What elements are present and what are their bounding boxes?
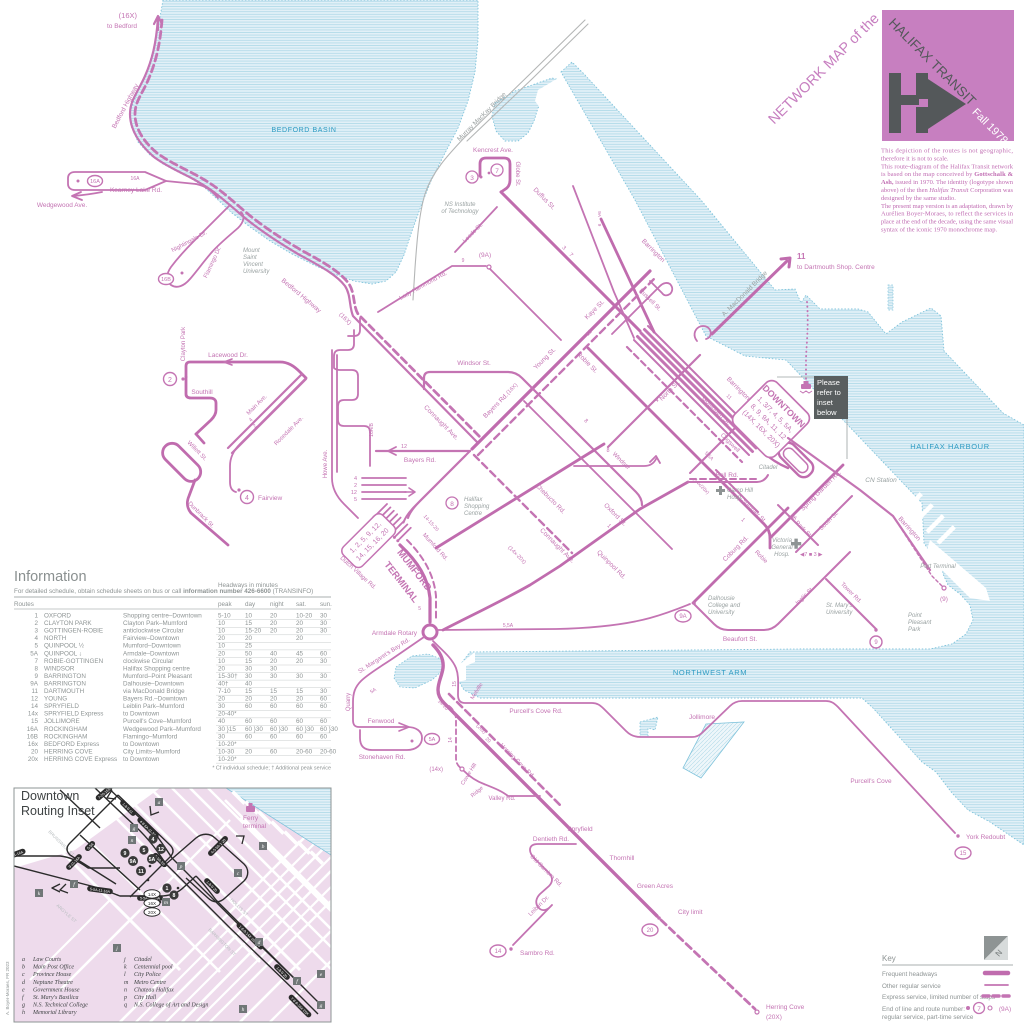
svg-text:9: 9	[596, 224, 602, 227]
svg-text:Frequent headways: Frequent headways	[882, 971, 937, 978]
svg-text:ROCKINGHAM: ROCKINGHAM	[44, 733, 87, 740]
svg-text:30: 30	[270, 673, 278, 680]
svg-text:20: 20	[245, 635, 253, 642]
svg-text:Chateau Halifax: Chateau Halifax	[134, 986, 174, 993]
svg-text:Spryfield: Spryfield	[567, 826, 593, 833]
svg-text:Bayers Rd.–Downtown: Bayers Rd.–Downtown	[123, 696, 188, 703]
svg-text:n: n	[124, 987, 127, 993]
svg-text:This depiction of the routes i: This depiction of the routes is not geog…	[881, 148, 1013, 155]
svg-text:20: 20	[296, 658, 304, 665]
svg-text:10: 10	[218, 620, 226, 627]
svg-text:10: 10	[245, 613, 253, 620]
svg-text:WINDSOR: WINDSOR	[44, 665, 75, 672]
svg-text:For detailed schedule, obtain: For detailed schedule, obtain schedule s…	[14, 588, 313, 595]
svg-text:Ferry: Ferry	[243, 815, 259, 822]
svg-text:Routing Inset: Routing Inset	[21, 804, 95, 818]
svg-text:Purcell's Cove Rd.: Purcell's Cove Rd.	[509, 708, 562, 715]
svg-text:60 }30: 60 }30	[245, 726, 263, 733]
svg-text:k: k	[124, 965, 127, 971]
svg-text:Point: Point	[908, 613, 922, 619]
svg-text:16x: 16x	[28, 741, 39, 748]
svg-text:(14x): (14x)	[429, 767, 443, 773]
svg-text:Express service, limited numbe: Express service, limited number of stops	[882, 994, 995, 1001]
svg-text:Dalhousie: Dalhousie	[708, 596, 735, 602]
svg-text:4: 4	[152, 837, 155, 843]
svg-text:16A: 16A	[90, 179, 100, 185]
svg-text:Other regular service: Other regular service	[882, 983, 941, 990]
svg-text:Kearney Lake Rd.: Kearney Lake Rd.	[110, 187, 162, 194]
svg-text:SPRYFIELD Express: SPRYFIELD Express	[44, 711, 103, 718]
svg-text:Information: Information	[14, 569, 87, 585]
svg-text:Herring Cove: Herring Cove	[766, 1004, 805, 1011]
svg-text:below: below	[817, 408, 837, 417]
svg-text:10: 10	[218, 658, 226, 665]
svg-text:8: 8	[450, 501, 454, 508]
svg-text:b: b	[262, 844, 265, 850]
svg-text:Mumford–Downtown: Mumford–Downtown	[123, 643, 181, 650]
svg-text:9: 9	[124, 851, 127, 857]
svg-text:20: 20	[218, 650, 226, 657]
svg-text:30: 30	[320, 673, 328, 680]
svg-text:HERRING COVE Express: HERRING COVE Express	[44, 756, 117, 763]
svg-text:g: g	[22, 1003, 25, 1009]
svg-text:16B: 16B	[161, 277, 171, 283]
svg-text:60: 60	[245, 733, 253, 740]
svg-text:Wedgewood Park–Mumford: Wedgewood Park–Mumford	[123, 726, 201, 733]
svg-text:20: 20	[31, 748, 39, 755]
svg-text:m: m	[124, 980, 129, 986]
svg-text:9A: 9A	[596, 211, 602, 218]
svg-text:Dentieth Rd.: Dentieth Rd.	[533, 836, 569, 843]
svg-text:q: q	[124, 1003, 127, 1009]
svg-text:b: b	[22, 965, 25, 971]
svg-text:therefore it is not to scale.: therefore it is not to scale.	[881, 155, 949, 162]
svg-text:Armdale Rotary: Armdale Rotary	[372, 630, 418, 637]
svg-text:N.S. Technical College: N.S. Technical College	[32, 1003, 88, 1009]
svg-text:Purcell's Cove–Mumford: Purcell's Cove–Mumford	[123, 718, 192, 725]
svg-text:HERRING COVE: HERRING COVE	[44, 748, 93, 755]
svg-text:10: 10	[218, 628, 226, 635]
svg-text:Green Acres: Green Acres	[637, 883, 674, 890]
svg-text:sat.: sat.	[296, 601, 306, 608]
svg-text:d: d	[258, 940, 261, 946]
svg-text:2: 2	[34, 620, 38, 627]
svg-text:terminal: terminal	[243, 823, 267, 830]
svg-text:to Downtown: to Downtown	[123, 711, 160, 718]
svg-text:25: 25	[245, 643, 253, 650]
svg-text:to Downtown: to Downtown	[123, 741, 160, 748]
svg-text:Saint: Saint	[243, 255, 257, 261]
svg-text:12: 12	[351, 490, 357, 496]
svg-text:7: 7	[495, 168, 499, 175]
svg-text:20x: 20x	[28, 756, 39, 763]
svg-text:20: 20	[270, 658, 278, 665]
svg-text:14: 14	[31, 703, 39, 710]
svg-text:Bayers Rd.: Bayers Rd.	[404, 457, 436, 464]
svg-text:Province House: Province House	[32, 972, 72, 978]
svg-text:60: 60	[320, 718, 328, 725]
svg-text:sun.: sun.	[320, 601, 332, 608]
svg-text:15: 15	[245, 688, 253, 695]
svg-text:Metro Centre: Metro Centre	[133, 980, 166, 986]
svg-text:60: 60	[320, 703, 328, 710]
svg-text:St. Mary's: St. Mary's	[826, 603, 852, 609]
svg-text:Howe Ave.: Howe Ave.	[323, 449, 329, 478]
svg-text:1: 1	[166, 886, 169, 892]
svg-text:Valley Rd.: Valley Rd.	[489, 796, 516, 802]
svg-text:10: 10	[218, 643, 226, 650]
svg-text:12: 12	[158, 847, 164, 853]
svg-text:Port Terminal: Port Terminal	[920, 564, 956, 570]
svg-text:CN Station: CN Station	[865, 477, 897, 484]
svg-text:20: 20	[270, 628, 278, 635]
svg-text:This route-diagram of the Hali: This route-diagram of the Halifax Transi…	[881, 163, 1014, 170]
svg-text:OXFORD: OXFORD	[44, 613, 71, 620]
svg-text:5: 5	[354, 497, 357, 503]
svg-text:10-20*: 10-20*	[218, 741, 237, 748]
svg-text:20: 20	[296, 696, 304, 703]
svg-text:inset: inset	[817, 398, 834, 407]
svg-text:60: 60	[296, 733, 304, 740]
svg-text:7: 7	[977, 1006, 981, 1013]
svg-text:2: 2	[168, 377, 172, 384]
svg-text:place at the end of the decade: place at the end of the decade, using th…	[881, 219, 1013, 226]
svg-text:day: day	[245, 601, 256, 608]
svg-text:20: 20	[647, 928, 654, 934]
svg-text:8: 8	[173, 893, 176, 899]
svg-text:20: 20	[270, 696, 278, 703]
svg-text:Wedgewood Ave.: Wedgewood Ave.	[37, 202, 88, 209]
svg-text:30: 30	[320, 620, 328, 627]
svg-text:Vincent: Vincent	[243, 262, 263, 268]
svg-text:City limit: City limit	[678, 909, 703, 916]
svg-text:5: 5	[34, 643, 38, 650]
svg-text:14X: 14X	[148, 892, 156, 897]
svg-text:General: General	[771, 545, 793, 551]
svg-text:Dalhousie–Downtown: Dalhousie–Downtown	[123, 680, 184, 687]
svg-text:20: 20	[296, 635, 304, 642]
svg-text:15-30†: 15-30†	[218, 673, 238, 680]
svg-text:(20X): (20X)	[766, 1014, 782, 1021]
svg-text:11: 11	[797, 252, 806, 261]
svg-text:University: University	[826, 610, 853, 616]
svg-text:SPRYFIELD: SPRYFIELD	[44, 703, 79, 710]
svg-text:Routes: Routes	[14, 601, 34, 608]
svg-text:HALIFAX HARBOUR: HALIFAX HARBOUR	[910, 442, 989, 451]
svg-text:3: 3	[34, 628, 38, 635]
svg-text:30: 30	[245, 665, 253, 672]
svg-text:Purcell's Cove: Purcell's Cove	[850, 778, 892, 785]
svg-text:7-10: 7-10	[218, 688, 231, 695]
svg-text:Shopping: Shopping	[464, 504, 490, 510]
svg-text:The present map version is an: The present map version is an adaptation…	[881, 203, 1014, 210]
svg-text:Please: Please	[817, 378, 840, 387]
svg-text:peak: peak	[218, 601, 233, 608]
svg-text:c: c	[22, 972, 25, 978]
svg-text:50: 50	[245, 650, 253, 657]
svg-text:CLAYTON PARK: CLAYTON PARK	[44, 620, 92, 627]
svg-text:DARTMOUTH: DARTMOUTH	[44, 688, 85, 695]
svg-text:20: 20	[218, 696, 226, 703]
svg-text:to Bedford: to Bedford	[107, 23, 137, 30]
svg-text:15: 15	[960, 851, 967, 857]
svg-text:Law Courts: Law Courts	[32, 957, 62, 963]
svg-text:15: 15	[31, 718, 39, 725]
svg-text:60: 60	[270, 718, 278, 725]
svg-text:5A: 5A	[149, 857, 156, 863]
svg-text:a: a	[22, 957, 25, 963]
svg-text:ROBIE-GOTTINGEN: ROBIE-GOTTINGEN	[44, 658, 104, 665]
svg-text:Halifax Shopping centre: Halifax Shopping centre	[123, 665, 190, 672]
svg-text:Centre: Centre	[464, 511, 483, 517]
svg-text:BARRINGTON: BARRINGTON	[44, 680, 86, 687]
svg-text:Ash, issued in 1970. The ident: Ash, issued in 1970. The identity (logot…	[881, 179, 1014, 186]
svg-text:30: 30	[320, 613, 328, 620]
svg-text:30: 30	[218, 703, 226, 710]
svg-text:Shopping centre–Downtown: Shopping centre–Downtown	[123, 613, 202, 620]
svg-text:9A: 9A	[130, 859, 137, 865]
svg-text:30: 30	[320, 628, 328, 635]
svg-text:Kencrest Ave.: Kencrest Ave.	[473, 147, 513, 154]
svg-text:refer to: refer to	[817, 388, 841, 397]
svg-text:9: 9	[34, 673, 38, 680]
svg-text:City Hall: City Hall	[134, 995, 156, 1001]
svg-text:above) of the then Halifax Tra: above) of the then Halifax Transit Corpo…	[881, 187, 1013, 194]
svg-text:15-20: 15-20	[245, 628, 262, 635]
svg-text:BEDFORD Express: BEDFORD Express	[44, 741, 99, 748]
svg-text:9: 9	[462, 258, 465, 264]
svg-text:30 }15: 30 }15	[218, 726, 236, 733]
svg-text:h: h	[242, 1007, 245, 1013]
svg-text:Hosp.: Hosp.	[727, 495, 743, 501]
svg-text:14: 14	[495, 949, 502, 955]
svg-text:to Dartmouth Shop. Centre: to Dartmouth Shop. Centre	[797, 264, 875, 271]
svg-text:Main Post Office: Main Post Office	[32, 964, 74, 971]
svg-text:20-40*: 20-40*	[218, 711, 237, 718]
svg-text:◀7 ■ 3 ▶: ◀7 ■ 3 ▶	[800, 552, 823, 558]
svg-text:QUINPOOL ↓: QUINPOOL ↓	[44, 650, 82, 657]
svg-text:Downtown: Downtown	[21, 789, 79, 803]
svg-text:Neptune Theatre: Neptune Theatre	[32, 980, 73, 986]
svg-text:(16X): (16X)	[119, 11, 138, 20]
svg-text:60: 60	[296, 703, 304, 710]
svg-text:GOTTINGEN-ROBIE: GOTTINGEN-ROBIE	[44, 628, 103, 635]
svg-text:15: 15	[245, 658, 253, 665]
svg-text:(9A): (9A)	[999, 1006, 1011, 1013]
svg-text:Pleasant: Pleasant	[908, 620, 932, 626]
svg-text:City Police: City Police	[134, 972, 161, 978]
svg-text:5,5A: 5,5A	[503, 623, 514, 629]
svg-text:g: g	[133, 826, 136, 832]
svg-text:40: 40	[270, 650, 278, 657]
svg-text:NORTH: NORTH	[44, 635, 67, 642]
svg-text:h: h	[22, 1010, 25, 1016]
svg-text:clockwise Circular: clockwise Circular	[123, 658, 173, 665]
svg-text:University: University	[708, 610, 735, 616]
svg-text:City Limits–Mumford: City Limits–Mumford	[123, 748, 181, 755]
svg-text:8: 8	[606, 448, 609, 454]
svg-text:Victoria: Victoria	[772, 538, 793, 544]
svg-text:60: 60	[320, 650, 328, 657]
svg-text:60: 60	[320, 696, 328, 703]
svg-text:anticlockwise Circular: anticlockwise Circular	[123, 628, 184, 635]
svg-text:Headways in minutes: Headways in minutes	[218, 582, 278, 589]
svg-text:Flamingo–Mumford: Flamingo–Mumford	[123, 733, 178, 740]
svg-text:Mumford–Point Pleasant: Mumford–Point Pleasant	[123, 673, 192, 680]
svg-text:Hosp.: Hosp.	[774, 552, 790, 558]
svg-text:* Cf individual schedule; † Ad: * Cf individual schedule; † Additional p…	[212, 766, 331, 772]
svg-text:5A: 5A	[30, 650, 39, 657]
svg-text:Memorial Library: Memorial Library	[32, 1010, 77, 1016]
svg-text:m: m	[164, 900, 168, 906]
svg-text:of Technology: of Technology	[441, 209, 479, 215]
svg-text:9A: 9A	[30, 680, 39, 687]
svg-text:g: g	[320, 1003, 323, 1009]
svg-text:University: University	[243, 269, 270, 275]
svg-text:30: 30	[270, 665, 278, 672]
svg-text:15: 15	[296, 688, 304, 695]
svg-text:NS Institute: NS Institute	[444, 202, 476, 208]
svg-text:Armdale–Downtown: Armdale–Downtown	[123, 650, 180, 657]
svg-text:Fenwood: Fenwood	[368, 718, 395, 725]
svg-text:Citadel: Citadel	[134, 957, 152, 963]
svg-text:Halifax: Halifax	[464, 497, 483, 503]
svg-text:45: 45	[296, 650, 304, 657]
svg-text:ROCKINGHAM: ROCKINGHAM	[44, 726, 87, 733]
svg-text:College and: College and	[708, 603, 741, 609]
svg-text:10-20: 10-20	[296, 613, 313, 620]
svg-text:20: 20	[218, 665, 226, 672]
svg-text:60: 60	[296, 718, 304, 725]
svg-text:Park: Park	[908, 627, 921, 633]
svg-text:5A: 5A	[429, 737, 436, 743]
svg-text:a: a	[158, 800, 161, 806]
svg-text:11: 11	[31, 688, 38, 695]
svg-text:16A: 16A	[131, 176, 141, 182]
svg-text:BARRINGTON: BARRINGTON	[44, 673, 86, 680]
svg-text:20: 20	[218, 635, 226, 642]
svg-text:Windsor St.: Windsor St.	[457, 360, 491, 367]
svg-text:p: p	[179, 864, 183, 870]
svg-text:10-20*: 10-20*	[218, 756, 237, 763]
svg-text:16X: 16X	[148, 901, 156, 906]
svg-text:syntax of the iconic 1970 mono: syntax of the iconic 1970 monochrome map…	[881, 227, 997, 234]
svg-text:Southill: Southill	[191, 389, 213, 396]
svg-text:JOLLIMORE: JOLLIMORE	[44, 718, 80, 725]
svg-text:5-10: 5-10	[218, 613, 231, 620]
svg-text:4: 4	[354, 476, 357, 482]
svg-text:60: 60	[270, 703, 278, 710]
svg-text:Lacewood Dr.: Lacewood Dr.	[208, 352, 248, 359]
svg-text:Stonehaven Rd.: Stonehaven Rd.	[359, 754, 406, 761]
svg-text:16B: 16B	[27, 733, 38, 740]
svg-text:Centennial pool: Centennial pool	[134, 965, 173, 971]
svg-text:4: 4	[34, 635, 38, 642]
svg-text:regular service, part-time ser: regular service, part-time service	[882, 1014, 974, 1021]
svg-text:QUINPOOL ½: QUINPOOL ½	[44, 642, 85, 650]
svg-text:15: 15	[270, 688, 278, 695]
svg-text:End of line and route number:: End of line and route number:	[882, 1006, 965, 1013]
svg-text:Fairview–Downtown: Fairview–Downtown	[123, 635, 180, 642]
svg-text:to Downtown: to Downtown	[123, 756, 160, 763]
svg-text:20-60: 20-60	[296, 748, 313, 755]
svg-text:14x: 14x	[28, 711, 39, 718]
svg-text:Beaufort St.: Beaufort St.	[723, 636, 758, 643]
svg-text:60 }30: 60 }30	[270, 726, 288, 733]
svg-text:Government House: Government House	[33, 987, 80, 993]
svg-text:Key: Key	[882, 954, 896, 963]
svg-text:(9): (9)	[940, 596, 948, 603]
svg-text:N.S. College of Art and Design: N.S. College of Art and Design	[133, 1002, 208, 1009]
svg-text:30: 30	[296, 673, 304, 680]
svg-text:St. Mary's Basilica: St. Mary's Basilica	[33, 995, 78, 1001]
svg-text:night: night	[270, 601, 284, 608]
svg-text:30: 30	[320, 688, 328, 695]
svg-text:8: 8	[34, 665, 38, 672]
svg-text:12: 12	[31, 696, 39, 703]
svg-text:9A: 9A	[679, 614, 686, 620]
svg-text:5: 5	[418, 606, 421, 612]
svg-text:60: 60	[245, 703, 253, 710]
svg-text:Fairview: Fairview	[258, 495, 283, 502]
svg-text:designed by the same studio.: designed by the same studio.	[881, 195, 956, 202]
svg-text:20-60: 20-60	[320, 748, 337, 755]
svg-text:4: 4	[245, 495, 249, 502]
svg-text:Jollimore: Jollimore	[689, 714, 715, 721]
svg-text:30: 30	[245, 673, 253, 680]
svg-text:is based on the map conceived: is based on the map conceived by Gottsch…	[881, 171, 1014, 178]
svg-text:14: 14	[448, 737, 454, 743]
svg-text:Clayton Park: Clayton Park	[181, 326, 187, 361]
svg-text:YOUNG: YOUNG	[44, 696, 67, 703]
svg-text:20: 20	[245, 696, 253, 703]
svg-text:3: 3	[470, 175, 474, 182]
svg-text:Quarry: Quarry	[346, 693, 352, 711]
svg-text:e: e	[22, 987, 25, 993]
svg-text:20: 20	[270, 620, 278, 627]
svg-text:40: 40	[218, 718, 226, 725]
svg-text:via MacDonald Bridge: via MacDonald Bridge	[123, 688, 185, 695]
svg-text:60 }30: 60 }30	[320, 726, 338, 733]
svg-text:A. Boyer-Moraes, FR 2023: A. Boyer-Moraes, FR 2023	[5, 961, 10, 1015]
svg-text:Globe St.: Globe St.	[514, 161, 520, 186]
svg-text:Mount: Mount	[243, 248, 260, 254]
svg-text:40†: 40†	[218, 680, 229, 687]
svg-text:2: 2	[354, 483, 357, 489]
svg-text:York Redoubt: York Redoubt	[966, 834, 1005, 841]
svg-text:10-30: 10-30	[218, 748, 235, 755]
svg-text:n: n	[131, 838, 134, 844]
svg-text:60: 60	[270, 748, 278, 755]
svg-text:16A: 16A	[27, 726, 39, 733]
svg-text:j: j	[123, 957, 126, 963]
svg-text:60: 60	[270, 733, 278, 740]
svg-text:NORTHWEST ARM: NORTHWEST ARM	[673, 668, 747, 677]
svg-text:5: 5	[143, 848, 146, 854]
svg-text:11: 11	[138, 869, 144, 875]
svg-text:30: 30	[320, 658, 328, 665]
svg-text:12: 12	[401, 444, 407, 450]
svg-text:40: 40	[245, 680, 253, 687]
svg-text:60: 60	[320, 733, 328, 740]
svg-text:15: 15	[245, 620, 253, 627]
svg-text:15: 15	[452, 681, 458, 687]
svg-text:Clayton Park–Mumford: Clayton Park–Mumford	[123, 620, 188, 627]
svg-text:Leiblin Park–Mumford: Leiblin Park–Mumford	[123, 703, 185, 710]
svg-text:20: 20	[296, 620, 304, 627]
svg-text:30: 30	[218, 733, 226, 740]
svg-text:4: 4	[655, 398, 658, 404]
